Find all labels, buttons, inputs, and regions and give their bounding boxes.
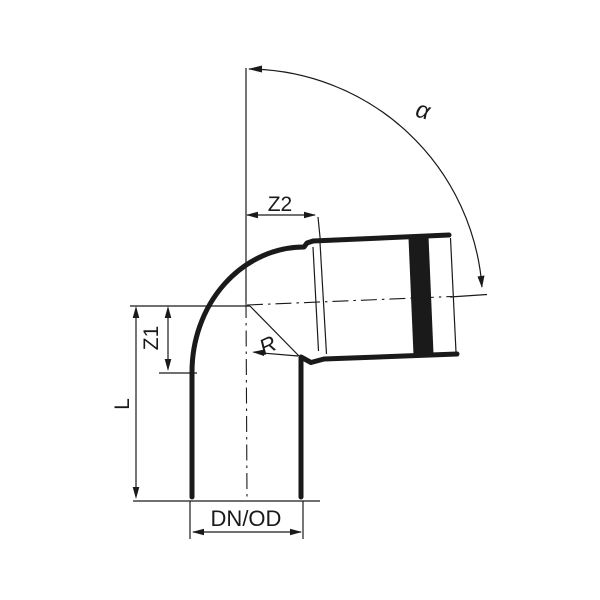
socket-shoulder-line-2	[320, 243, 327, 355]
l-arrow-top	[133, 306, 140, 318]
dnod-arrow-right	[290, 529, 302, 536]
z2-arrow-left	[246, 212, 258, 219]
angle-arc	[249, 69, 482, 287]
z2-arrow-right	[304, 212, 316, 219]
radius-dimension: R	[250, 306, 299, 360]
z1-label: Z1	[140, 326, 163, 351]
pipe-elbow-drawing: α R Z2 Z1	[0, 0, 600, 600]
pipe-inner-edge	[301, 354, 457, 497]
dnod-dimension: DN/OD	[133, 501, 320, 539]
technical-drawing-canvas: α R Z2 Z1	[0, 0, 600, 600]
alpha-label: α	[413, 96, 434, 126]
vertical-axis-centerline	[246, 302, 247, 501]
angle-arc-arrow-bottom	[478, 276, 485, 289]
pipe-elbow-outline	[192, 235, 457, 497]
seal-ring-band	[409, 237, 433, 356]
l-label: L	[111, 398, 134, 410]
radius-label: R	[255, 330, 280, 359]
angle-dimension: α	[248, 66, 485, 289]
z2-dimension: Z2	[246, 193, 321, 242]
z1-dimension: Z1	[140, 306, 197, 373]
dnod-arrow-left	[192, 529, 204, 536]
socket-end-face-line	[451, 238, 457, 352]
l-dimension: L	[111, 306, 250, 499]
socket-axis-extension	[450, 295, 487, 298]
z1-arrow-bottom	[165, 359, 172, 371]
socket-shoulder-line-1	[313, 247, 319, 351]
angle-arc-arrow-top	[248, 66, 262, 73]
dnod-label: DN/OD	[211, 506, 282, 531]
socket-detail-lines	[313, 238, 456, 354]
z2-label: Z2	[268, 193, 293, 216]
l-arrow-bottom	[133, 487, 140, 499]
z1-arrow-top	[165, 306, 172, 318]
centerlines	[246, 68, 487, 501]
